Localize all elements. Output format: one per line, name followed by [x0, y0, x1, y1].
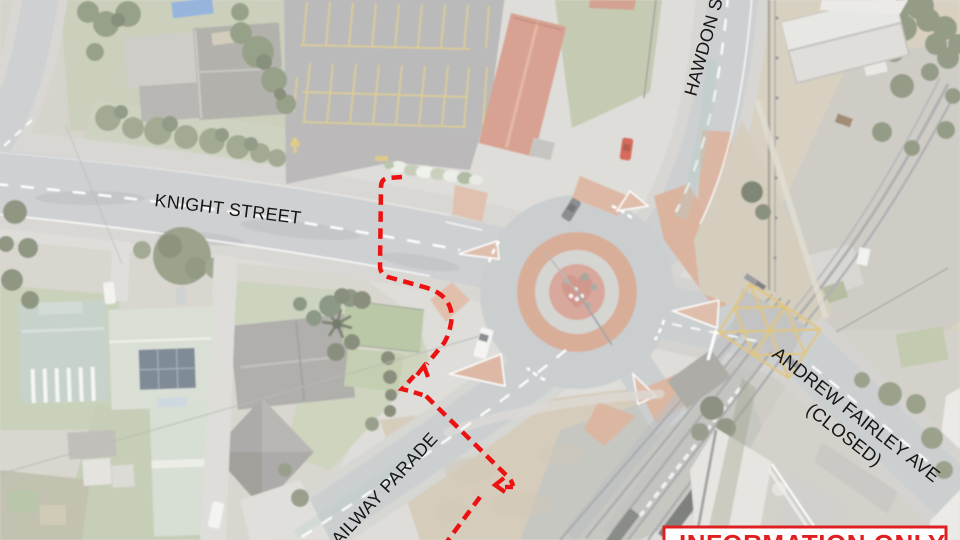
svg-text:INFORMATION ONLY: INFORMATION ONLY	[679, 529, 946, 540]
